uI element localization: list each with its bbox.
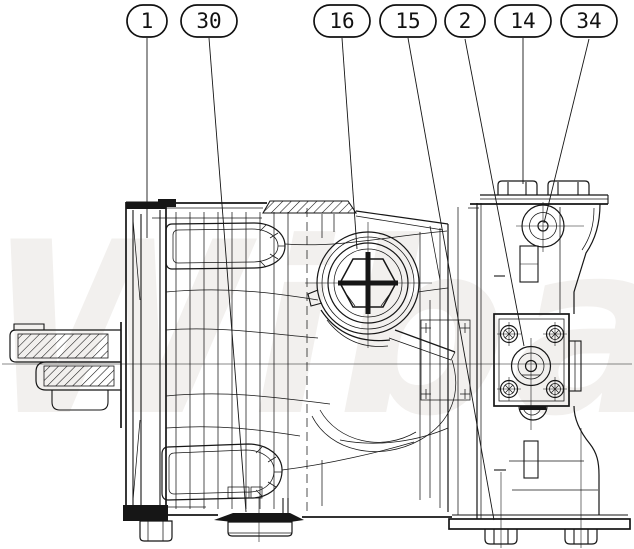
bottom-plug <box>214 498 304 542</box>
callout-balloon-30[interactable]: 30 <box>181 5 237 37</box>
parts-diagram-canvas: Wibako <box>0 0 634 549</box>
callout-label-15: 15 <box>395 9 420 33</box>
callout-label-14: 14 <box>510 9 535 33</box>
callout-balloon-16[interactable]: 16 <box>314 5 370 37</box>
callout-label-2: 2 <box>459 9 472 33</box>
callout-balloon-14[interactable]: 14 <box>495 5 551 37</box>
callout-balloon-2[interactable]: 2 <box>445 5 485 37</box>
name-plate-hatched <box>263 201 356 213</box>
callout-label-16: 16 <box>329 9 354 33</box>
callout-balloon-34[interactable]: 34 <box>561 5 617 37</box>
callout-balloon-1[interactable]: 1 <box>127 5 167 37</box>
callout-label-34: 34 <box>576 9 601 33</box>
pump-technical-drawing: Wibako <box>0 0 634 549</box>
callout-label-1: 1 <box>141 9 154 33</box>
callout-label-30: 30 <box>196 9 221 33</box>
callout-balloon-15[interactable]: 15 <box>380 5 436 37</box>
